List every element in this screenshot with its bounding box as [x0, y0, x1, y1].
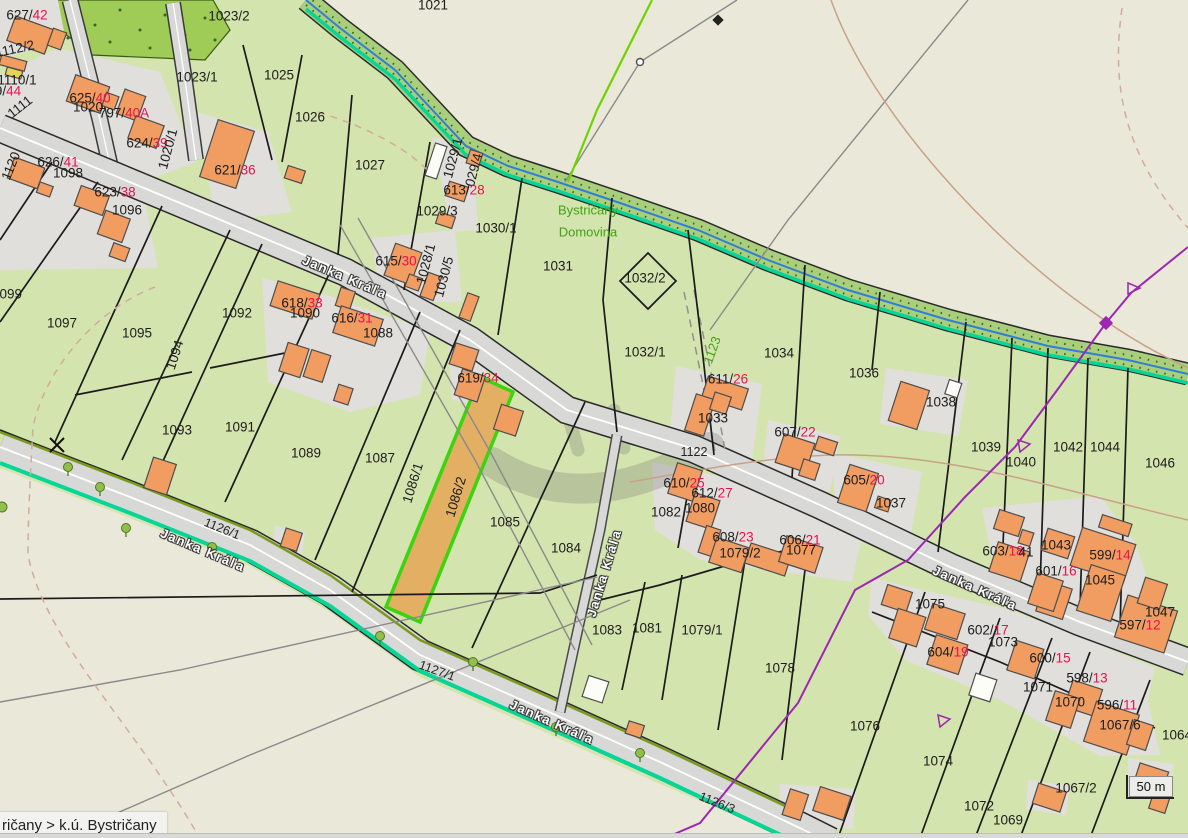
scale-bar-label: 50 m [1129, 776, 1173, 797]
breadcrumb-text[interactable]: ričany > k.ú. Bystričany [2, 817, 157, 834]
pole-marker [637, 59, 644, 66]
cadastral-map-viewport[interactable]: 627/4210211023/21112/21023/110251110/19/… [0, 0, 1188, 838]
bottom-page-strip [0, 833, 1188, 838]
map-canvas [0, 0, 1188, 838]
